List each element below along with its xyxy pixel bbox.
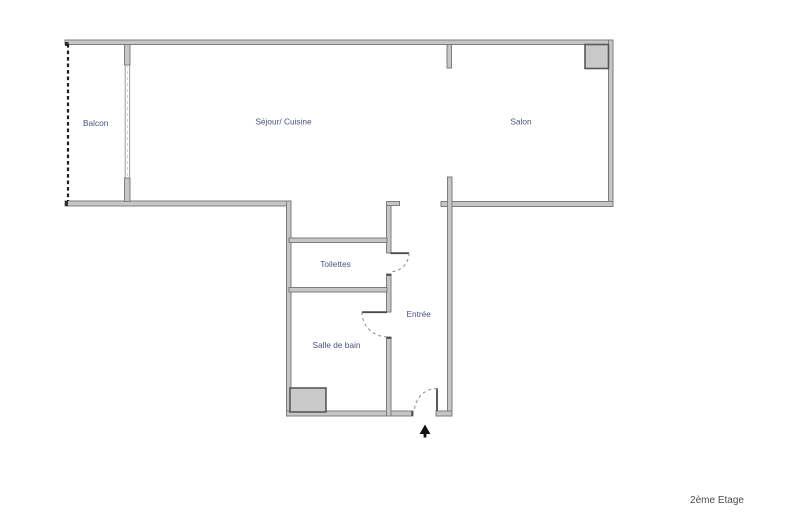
svg-text:Balcon: Balcon bbox=[83, 118, 109, 128]
svg-text:Salle de bain: Salle de bain bbox=[313, 340, 361, 350]
svg-text:Toilettes: Toilettes bbox=[320, 259, 350, 269]
svg-text:Séjour/ Cuisine: Séjour/ Cuisine bbox=[255, 116, 312, 126]
svg-text:Entrée: Entrée bbox=[406, 309, 431, 319]
svg-text:2ème Etage: 2ème Etage bbox=[690, 495, 744, 506]
svg-text:Salon: Salon bbox=[510, 117, 532, 127]
